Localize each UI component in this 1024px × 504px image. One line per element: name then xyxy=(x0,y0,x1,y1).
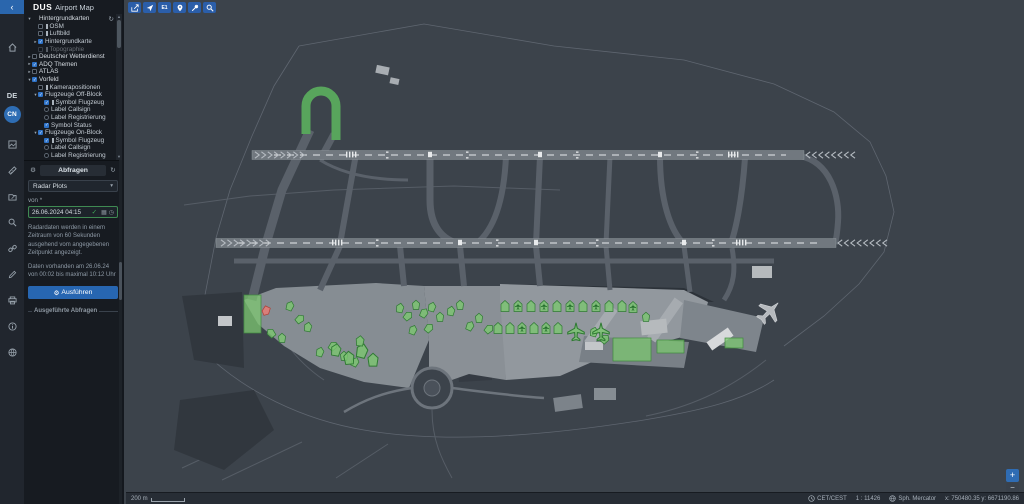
layer-checkbox[interactable] xyxy=(44,138,49,143)
map-scale-widget: 200 m xyxy=(131,496,185,502)
pin-icon[interactable] xyxy=(173,2,186,13)
datetime-input[interactable]: 26.06.2024 04:15 ✓ ▦ ◷ xyxy=(28,206,118,218)
layer-row[interactable]: Label Callsign xyxy=(24,106,116,114)
layer-tree-panel: ▾HintergrundkartenOSMLuftbild▸Hintergrun… xyxy=(24,14,122,160)
layer-row[interactable]: Symbol Status xyxy=(24,121,116,129)
executed-queries-divider: Ausgeführte Abfragen xyxy=(28,308,118,314)
layer-checkbox[interactable] xyxy=(32,54,37,59)
legend-icon xyxy=(46,31,48,36)
layer-label: Vorfeld xyxy=(39,76,59,83)
calendar-icon[interactable]: ▦ xyxy=(101,209,107,216)
query-type-value: Radar Plots xyxy=(33,183,110,190)
data-availability-text: Daten vorhanden am 26.06.24 von 00:02 bi… xyxy=(28,263,118,280)
locate-aircraft-icon[interactable] xyxy=(143,2,156,13)
stand-zone[interactable] xyxy=(657,340,684,353)
icon-rail: ‹ DE CN xyxy=(0,0,24,504)
edit-icon[interactable] xyxy=(0,183,24,209)
layer-label: Flugzeuge On-Block xyxy=(45,129,102,136)
tree-caret-icon[interactable]: ▾ xyxy=(27,16,32,22)
layer-checkbox[interactable] xyxy=(38,130,43,135)
status-bar: 200 m CET/CEST 1 : 11426 Sph. Mercator x… xyxy=(126,492,1024,504)
airport-map[interactable] xyxy=(126,0,1024,492)
layer-label: Deutscher Wetterdienst xyxy=(39,53,105,60)
layer-row[interactable]: OSM xyxy=(24,23,116,31)
layer-label: Label Registrierung xyxy=(51,152,106,159)
layer-label: ATLAS xyxy=(39,68,58,75)
layer-tree-scrollbar[interactable]: ▲ ▼ xyxy=(116,14,122,160)
query-tab[interactable]: Abfragen xyxy=(40,165,106,176)
layer-row[interactable]: ▾Flugzeuge Off-Block xyxy=(24,91,116,99)
zoom-controls: + − xyxy=(1006,469,1019,492)
layer-checkbox[interactable] xyxy=(38,24,43,29)
projection-indicator[interactable]: Sph. Mercator xyxy=(889,495,936,502)
help-icon[interactable] xyxy=(0,339,24,365)
clock-icon[interactable]: ◷ xyxy=(109,209,114,216)
layer-checkbox[interactable] xyxy=(32,62,37,67)
layer-row[interactable]: Luftbild xyxy=(24,30,116,38)
sidebar-scrollbar[interactable] xyxy=(119,160,122,504)
map-canvas[interactable]: E1 + − xyxy=(126,0,1024,492)
search-icon[interactable] xyxy=(203,2,216,13)
legend-icon xyxy=(52,138,54,143)
layer-row[interactable]: Label Callsign xyxy=(24,144,116,152)
layer-label: Hintergrundkarten xyxy=(39,15,89,22)
layer-label: Hintergrundkarte xyxy=(45,38,92,45)
run-label: Ausführen xyxy=(61,289,92,296)
e1-button[interactable]: E1 xyxy=(158,2,171,13)
layer-row[interactable]: Label Registrierung xyxy=(24,114,116,122)
home-icon[interactable] xyxy=(0,36,24,58)
scale-ratio: 1 : 11426 xyxy=(856,496,881,502)
stand-zone[interactable] xyxy=(613,338,651,361)
basemap-icon[interactable] xyxy=(0,131,24,157)
legend-icon xyxy=(46,85,48,90)
layer-row[interactable]: ▸ATLAS xyxy=(24,68,116,76)
layer-row[interactable]: Label Registrierung xyxy=(24,152,116,160)
layer-label: OSM xyxy=(50,23,64,30)
query-info-text: Radardaten werden in einem Zeitraum von … xyxy=(28,224,118,258)
layer-row[interactable]: ▾Hintergrundkarten xyxy=(24,15,116,23)
layer-checkbox[interactable] xyxy=(38,85,43,90)
scrollbar-thumb[interactable] xyxy=(117,20,121,48)
stand-zone[interactable] xyxy=(244,295,261,333)
layer-radio[interactable] xyxy=(44,145,49,150)
app-title: DUS Airport Map xyxy=(24,0,122,14)
layer-tree: ▾HintergrundkartenOSMLuftbild▸Hintergrun… xyxy=(24,15,116,159)
layer-radio[interactable] xyxy=(44,107,49,112)
layer-label: Symbol Flugzeug xyxy=(56,99,105,106)
layer-label: Symbol Flugzeug xyxy=(56,137,105,144)
sidebar: DUS Airport Map ▾HintergrundkartenOSMLuf… xyxy=(24,0,124,504)
layer-checkbox[interactable] xyxy=(44,100,49,105)
layer-row[interactable]: ▸ADQ Themen xyxy=(24,61,116,69)
layer-row[interactable]: Kamerapositionen xyxy=(24,83,116,91)
layer-label: Flugzeuge Off-Block xyxy=(45,91,102,98)
layer-row[interactable]: ▾Flugzeuge On-Block xyxy=(24,129,116,137)
layer-label: ADQ Themen xyxy=(39,61,77,68)
timezone-indicator[interactable]: CET/CEST xyxy=(808,495,847,502)
layer-radio[interactable] xyxy=(44,115,49,120)
layer-radio[interactable] xyxy=(44,153,49,158)
clock-icon xyxy=(808,495,815,502)
draw-icon[interactable] xyxy=(0,261,24,287)
runway-north xyxy=(252,151,804,160)
layer-label: Label Registrierung xyxy=(51,114,106,121)
layer-label: Label Callsign xyxy=(51,144,91,151)
layer-row[interactable]: Symbol Flugzeug xyxy=(24,99,116,107)
run-query-button[interactable]: ⚙ Ausführen xyxy=(28,286,118,299)
valid-check-icon: ✓ xyxy=(92,208,97,216)
layer-label: Kamerapositionen xyxy=(50,84,101,91)
globe-icon xyxy=(889,495,896,502)
layer-checkbox[interactable] xyxy=(38,31,43,36)
legend-icon xyxy=(46,24,48,29)
zoom-in-button[interactable]: + xyxy=(1006,469,1019,482)
query-refresh-icon[interactable]: ↻ xyxy=(108,166,118,174)
query-panel: ⚙ Abfragen ↻ Radar Plots ▾ von * 26.06.2… xyxy=(24,160,122,314)
cursor-coordinates: x: 750480.35 y: 6671190.86 xyxy=(945,496,1019,502)
scale-bar xyxy=(151,498,185,502)
layer-row[interactable]: ▸Deutscher Wetterdienst xyxy=(24,53,116,61)
layer-checkbox[interactable] xyxy=(32,77,37,82)
zoom-out-button[interactable]: − xyxy=(1006,483,1019,492)
layer-label: Topographie xyxy=(50,46,85,53)
layer-row[interactable]: ▾Vorfeld xyxy=(24,76,116,84)
tools-icon[interactable] xyxy=(188,2,201,13)
measure-icon[interactable] xyxy=(0,157,24,183)
chevron-down-icon: ▾ xyxy=(110,183,113,189)
layer-label: Label Callsign xyxy=(51,106,91,113)
info-icon[interactable] xyxy=(0,313,24,339)
layer-checkbox[interactable] xyxy=(44,123,49,128)
map-toolbar: E1 xyxy=(128,2,216,13)
layer-label: Symbol Status xyxy=(51,122,92,129)
query-settings-icon[interactable]: ⚙ xyxy=(28,166,38,174)
layer-checkbox[interactable] xyxy=(32,69,37,74)
legend-icon xyxy=(52,100,54,105)
runway-south xyxy=(216,239,836,248)
avatar[interactable]: CN xyxy=(4,106,21,123)
app-logo: DUS xyxy=(33,2,52,12)
layer-row[interactable]: Symbol Flugzeug xyxy=(24,137,116,145)
language-toggle[interactable]: DE xyxy=(7,88,17,102)
print-icon[interactable] xyxy=(0,287,24,313)
layer-label: Luftbild xyxy=(50,30,70,37)
link-icon[interactable] xyxy=(0,235,24,261)
legend-icon xyxy=(46,47,48,52)
layer-row[interactable]: Topographie xyxy=(24,45,116,53)
app-window: ‹ DE CN xyxy=(0,0,1024,504)
layer-checkbox[interactable] xyxy=(38,39,43,44)
search-icon[interactable] xyxy=(0,209,24,235)
layer-checkbox[interactable] xyxy=(38,47,43,52)
query-type-select[interactable]: Radar Plots ▾ xyxy=(28,180,118,192)
share-icon[interactable] xyxy=(128,2,141,13)
layer-row[interactable]: ▸Hintergrundkarte xyxy=(24,38,116,46)
from-label: von * xyxy=(28,197,118,204)
layer-checkbox[interactable] xyxy=(38,92,43,97)
collapse-sidebar-button[interactable]: ‹ xyxy=(0,0,24,14)
run-gear-icon: ⚙ xyxy=(54,289,60,297)
datetime-value: 26.06.2024 04:15 xyxy=(32,209,92,216)
stand-zone[interactable] xyxy=(725,338,743,348)
refresh-layers-icon[interactable]: ↻ xyxy=(109,15,114,23)
app-title-text: Airport Map xyxy=(55,3,94,12)
scale-label: 200 m xyxy=(131,496,148,502)
